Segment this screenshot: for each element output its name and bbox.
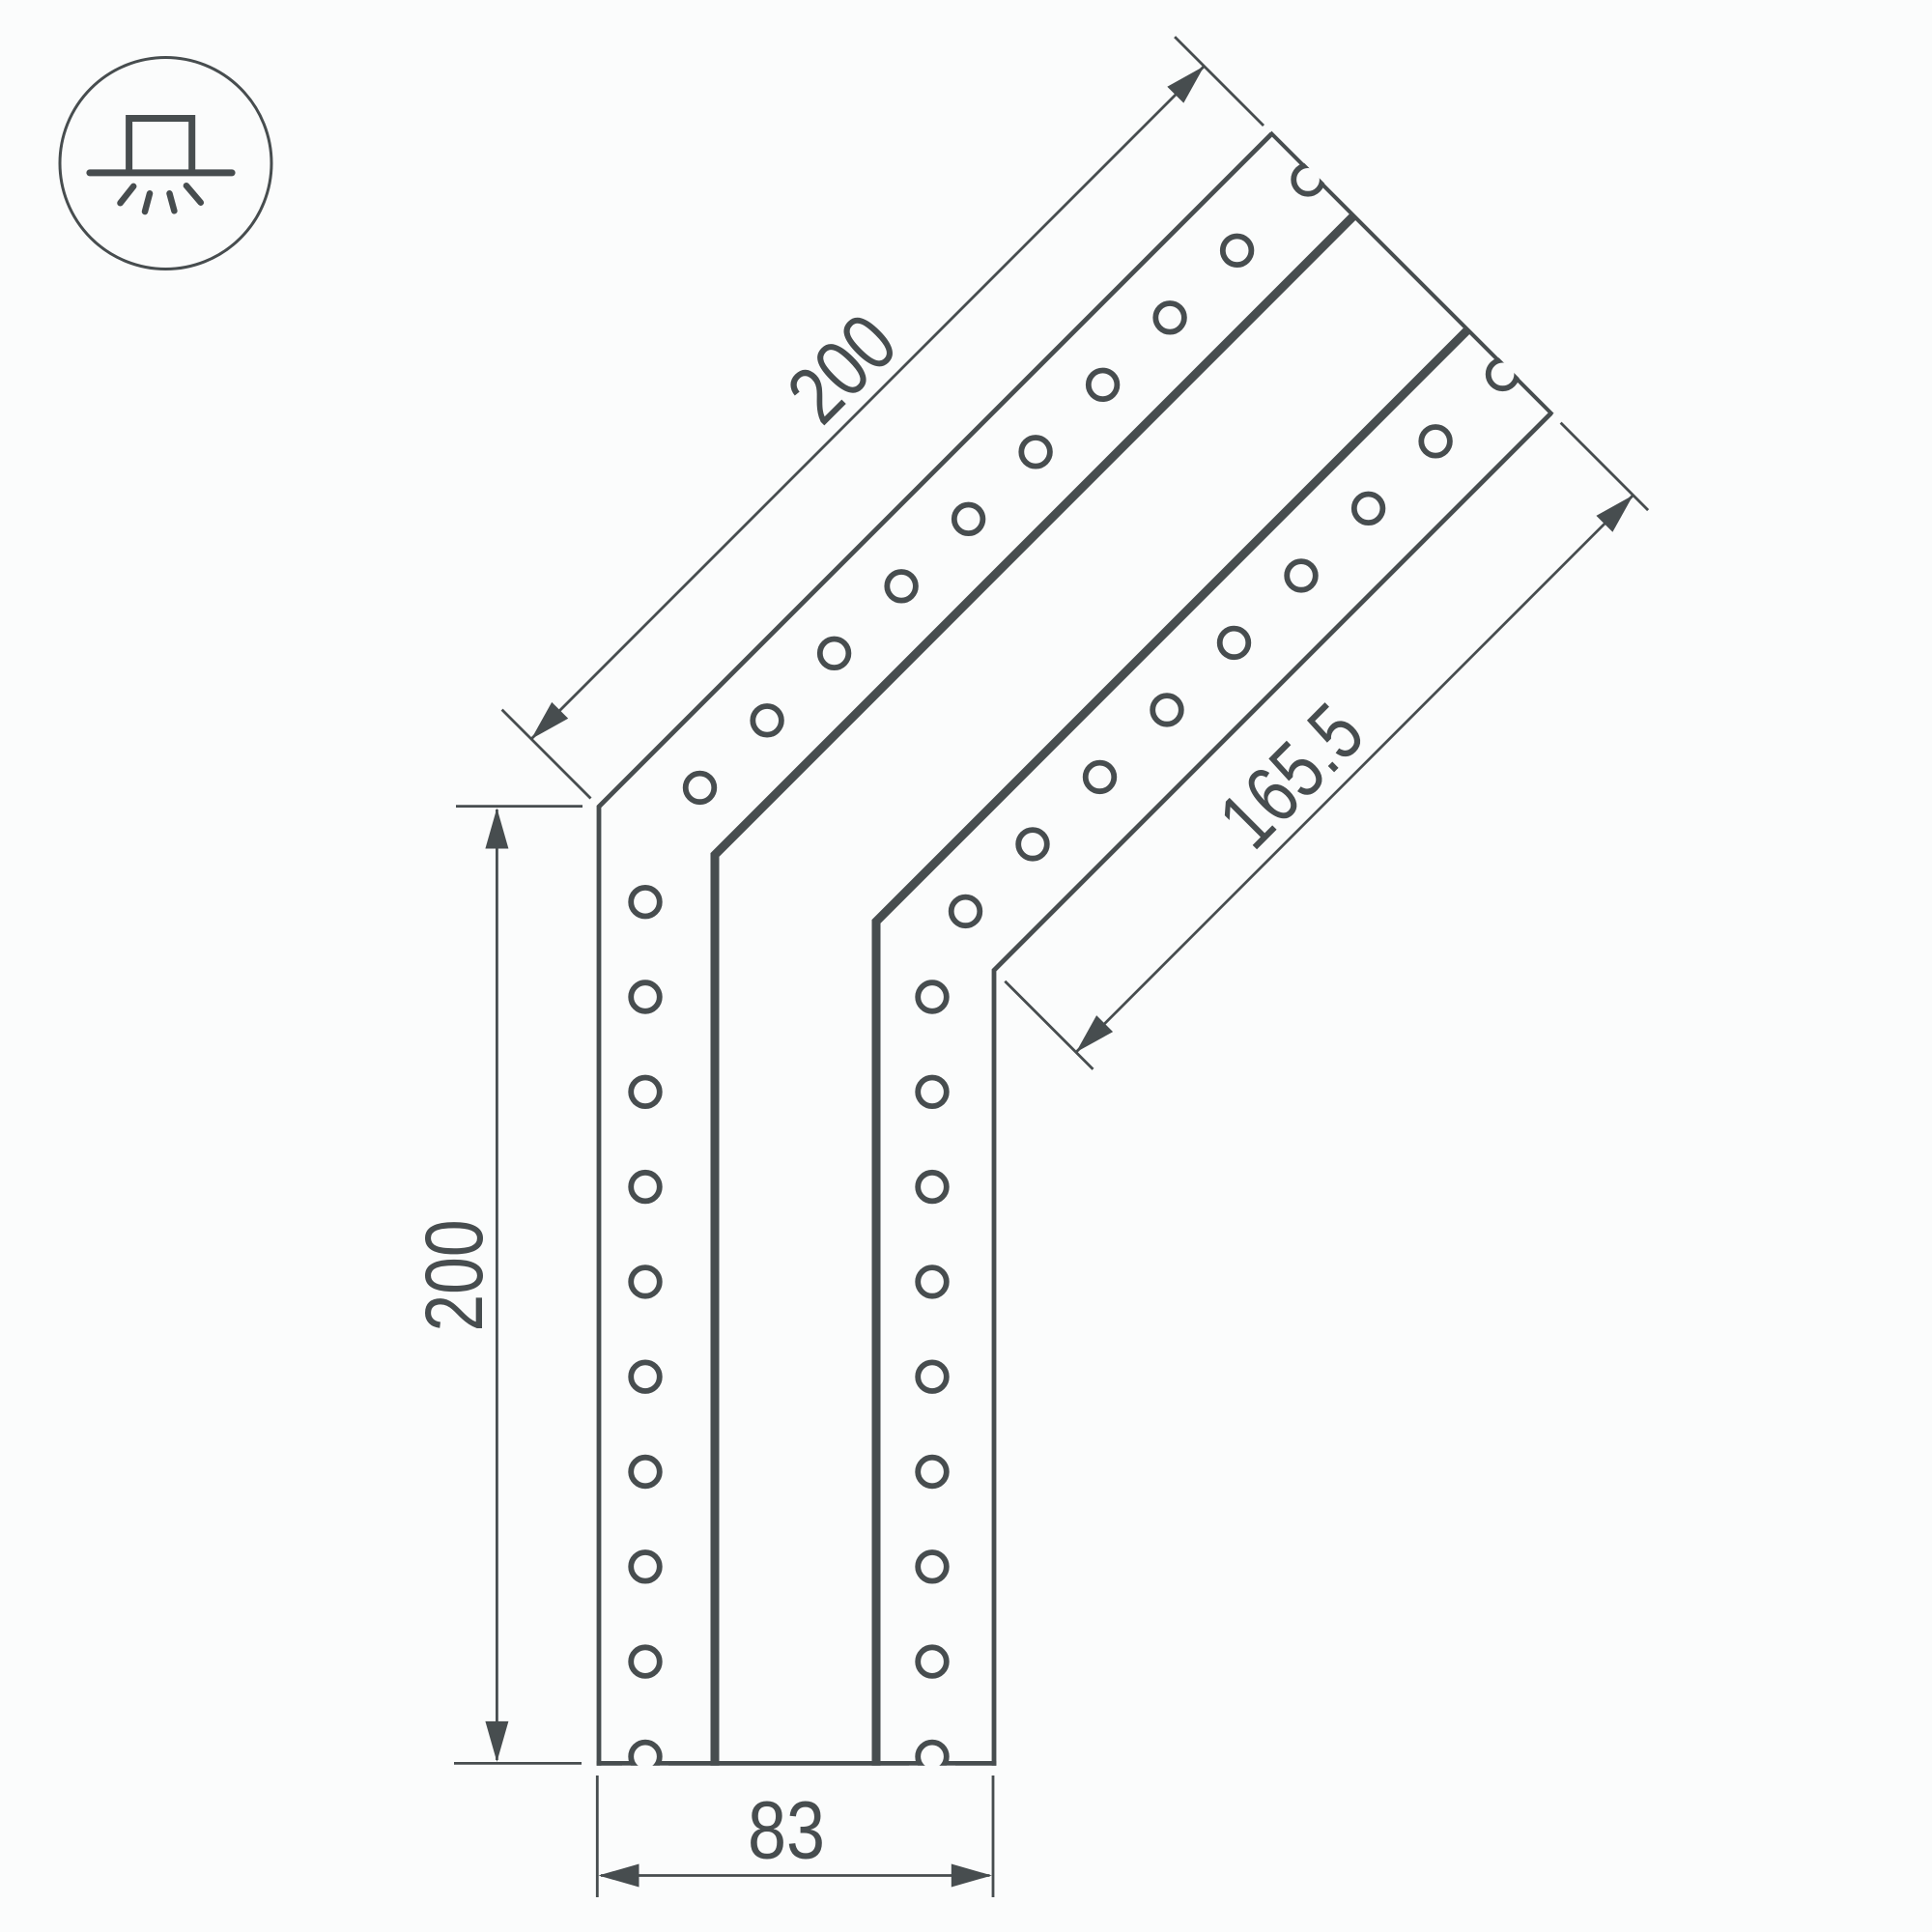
svg-text:200: 200 [409,1220,499,1332]
svg-text:83: 83 [748,1785,825,1876]
